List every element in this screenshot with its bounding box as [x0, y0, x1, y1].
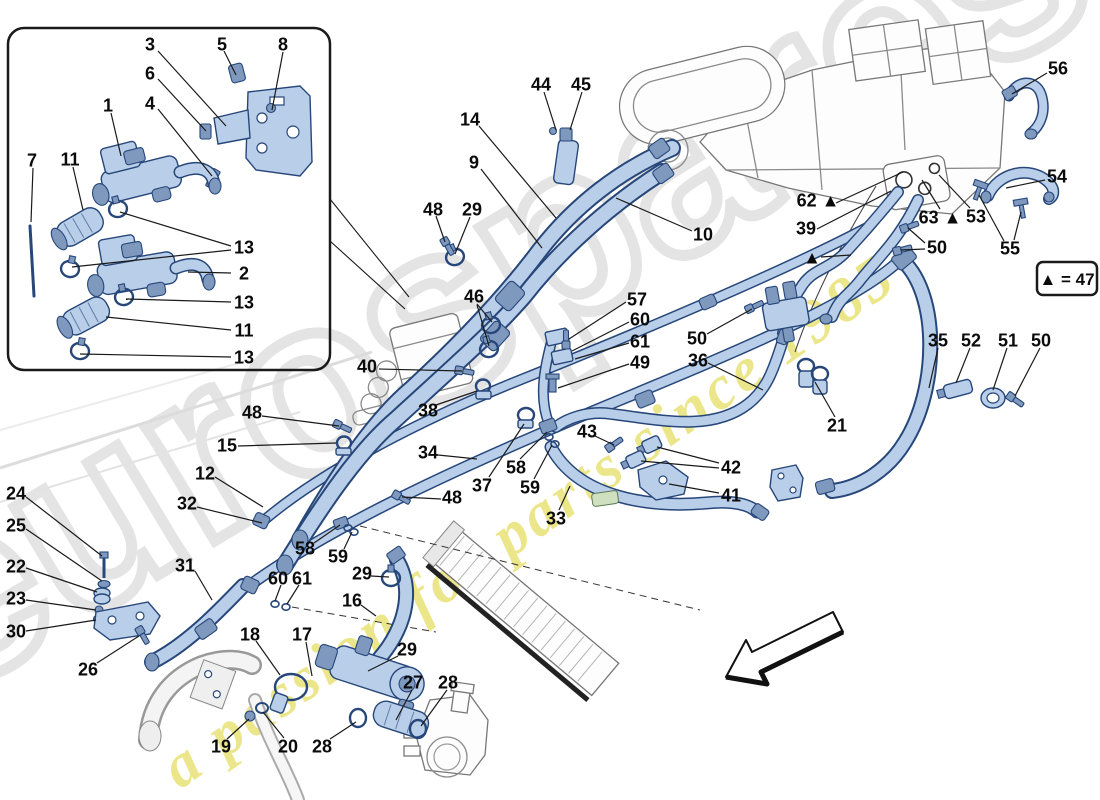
- callout-62▲-21: 62 ▲: [797, 191, 840, 211]
- callout-61-32: 61: [630, 332, 650, 352]
- callout-35-72: 35: [928, 331, 948, 351]
- callout-34-38: 34: [418, 443, 438, 463]
- callout-25-53: 25: [6, 516, 26, 536]
- callout-50-36: 50: [687, 329, 707, 349]
- callout-46-29: 46: [464, 287, 484, 307]
- callout-48-47: 48: [242, 403, 262, 423]
- callout-55-20: 55: [1000, 239, 1020, 259]
- callout-20-70: 20: [278, 737, 298, 757]
- legend-text: ▲ = 47: [1039, 270, 1094, 289]
- clip-55b: [1013, 198, 1030, 219]
- callout-33-45: 33: [546, 509, 566, 529]
- callout-28-68: 28: [438, 673, 458, 693]
- callout-27-67: 27: [403, 673, 423, 693]
- callout-38-35: 38: [418, 401, 438, 421]
- leader-line-50: [1015, 348, 1040, 396]
- callout-24-52: 24: [6, 484, 26, 504]
- leader-line-29: [371, 576, 389, 577]
- inset-pump-2: [80, 228, 180, 308]
- callout-56-18: 56: [1048, 59, 1068, 79]
- leader-line-52: [956, 348, 970, 383]
- callout-▲-23: ▲: [803, 248, 821, 268]
- parts-diagram-page: eurospares a passion for parts since 198…: [0, 0, 1100, 800]
- callout-44-13: 44: [531, 75, 551, 95]
- callout-51-74: 51: [998, 331, 1018, 351]
- callout-12-49: 12: [195, 464, 215, 484]
- callout-60-31: 60: [630, 310, 650, 330]
- inset-pump-1: [82, 132, 185, 217]
- bolt-50c: [1005, 391, 1025, 408]
- hose-54: [988, 173, 1053, 199]
- callout-49-33: 49: [630, 353, 650, 373]
- grommet-51: [981, 388, 1005, 408]
- callout-9-16: 9: [469, 153, 479, 173]
- callout-54-19: 54: [1047, 167, 1067, 187]
- callout-6-3: 6: [145, 64, 155, 84]
- leader-line-3: [158, 51, 226, 126]
- callout-29-66: 29: [397, 640, 417, 660]
- callout-8-2: 8: [278, 35, 288, 55]
- callout-52-73: 52: [961, 331, 981, 351]
- callout-63▲-24: 63 ▲: [919, 208, 962, 228]
- callout-60-60: 60: [268, 569, 288, 589]
- callout-13-8: 13: [234, 238, 254, 258]
- callout-48-27: 48: [423, 200, 443, 220]
- pin-7: [30, 226, 34, 296]
- callout-50-75: 50: [1031, 331, 1051, 351]
- callout-1-5: 1: [103, 96, 113, 116]
- callout-59-41: 59: [520, 478, 540, 498]
- leader-line-50: [908, 228, 925, 243]
- callout-14-15: 14: [460, 110, 480, 130]
- callout-7-6: 7: [27, 151, 37, 171]
- leader-line-54: [1006, 180, 1045, 188]
- leader-line-13: [120, 212, 231, 246]
- callout-15-46: 15: [217, 436, 237, 456]
- leader-line-11: [73, 167, 83, 210]
- legend-box: ▲ = 47: [1037, 262, 1097, 295]
- callout-19-69: 19: [211, 737, 231, 757]
- callout-31-51: 31: [175, 556, 195, 576]
- callout-5-1: 5: [217, 35, 227, 55]
- hose-flange: [770, 465, 803, 501]
- leader-line-28: [330, 722, 356, 739]
- callout-28-71: 28: [312, 737, 332, 757]
- callout-36-37: 36: [688, 351, 708, 371]
- callout-42-43: 42: [721, 458, 741, 478]
- callout-29-62: 29: [352, 564, 372, 584]
- callout-57-30: 57: [627, 290, 647, 310]
- callout-58-40: 58: [506, 458, 526, 478]
- screw-8: [267, 104, 276, 113]
- callout-23-55: 23: [6, 589, 26, 609]
- diagram-canvas: eurospares a passion for parts since 198…: [0, 0, 1100, 800]
- callout-41-44: 41: [721, 486, 741, 506]
- callout-53-25: 53: [966, 207, 986, 227]
- callout-18-64: 18: [240, 625, 260, 645]
- callout-39-22: 39: [796, 219, 816, 239]
- callout-37-39: 37: [472, 476, 492, 496]
- callout-16-63: 16: [342, 591, 362, 611]
- callout-61-61: 61: [292, 569, 312, 589]
- callout-4-4: 4: [145, 94, 155, 114]
- inset-hose-11b: [53, 293, 113, 341]
- nut-19: [245, 711, 255, 721]
- callout-32-50: 32: [177, 494, 197, 514]
- clip-5: [228, 62, 246, 83]
- callout-48-48: 48: [442, 488, 462, 508]
- callout-11-11: 11: [234, 321, 253, 341]
- callout-26-57: 26: [78, 660, 98, 680]
- leader-line-7: [31, 168, 33, 222]
- callout-17-65: 17: [292, 625, 312, 645]
- callout-40-34: 40: [357, 357, 377, 377]
- callout-22-54: 22: [6, 557, 26, 577]
- callout-29-28: 29: [462, 200, 482, 220]
- callout-30-56: 30: [6, 622, 26, 642]
- callout-50-26: 50: [927, 238, 947, 258]
- leader-line-6: [158, 79, 206, 131]
- callout-10-17: 10: [693, 225, 713, 245]
- callout-13-12: 13: [234, 348, 254, 368]
- leader-line-55: [1014, 212, 1021, 240]
- callout-21-76: 21: [827, 416, 847, 436]
- callout-43-42: 43: [577, 422, 597, 442]
- callout-59-59: 59: [328, 547, 348, 567]
- callout-11-7: 11: [60, 150, 79, 170]
- callout-13-10: 13: [234, 293, 254, 313]
- callout-45-14: 45: [571, 75, 591, 95]
- leader-line-51: [993, 348, 1007, 390]
- inset-bracket: [200, 62, 312, 188]
- callout-2-9: 2: [239, 264, 249, 284]
- direction-arrow: [726, 612, 843, 684]
- callout-58-58: 58: [295, 539, 315, 559]
- callout-3-0: 3: [145, 35, 155, 55]
- fitting-52: [936, 379, 973, 402]
